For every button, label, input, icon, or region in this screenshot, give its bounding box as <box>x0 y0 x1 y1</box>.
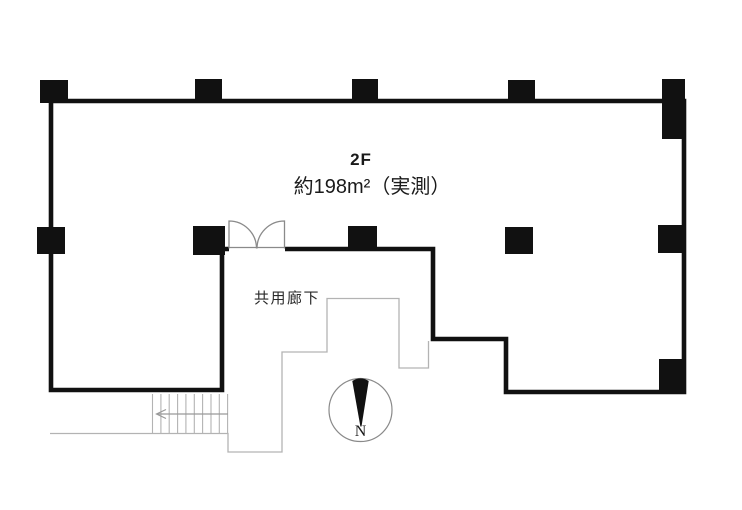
pillar <box>348 226 377 249</box>
pillar <box>37 227 65 254</box>
area-label: 約198m²（実測） <box>272 170 472 199</box>
pillar <box>662 79 685 139</box>
corridor-label: 共用廊下 <box>254 287 326 308</box>
pillars <box>37 79 685 393</box>
pillar <box>658 225 683 253</box>
left-arrow-icon <box>157 410 229 419</box>
pillar <box>352 79 378 103</box>
compass-north-label: N <box>345 423 376 441</box>
pillar <box>505 227 533 254</box>
pillar <box>508 80 535 102</box>
door-swing-icon <box>229 221 285 249</box>
floor-plan: 2F 約198m²（実測） 共用廊下 N <box>0 0 742 510</box>
pillar <box>195 79 222 103</box>
stairs-direction-arrow <box>157 410 229 419</box>
door-leaf-right <box>257 221 285 249</box>
floor-label: 2F <box>330 150 392 170</box>
pillar <box>40 80 68 103</box>
pillar <box>659 359 684 393</box>
north-needle-icon <box>352 378 368 426</box>
pillar <box>193 226 225 255</box>
door-leaf-left <box>229 221 257 249</box>
